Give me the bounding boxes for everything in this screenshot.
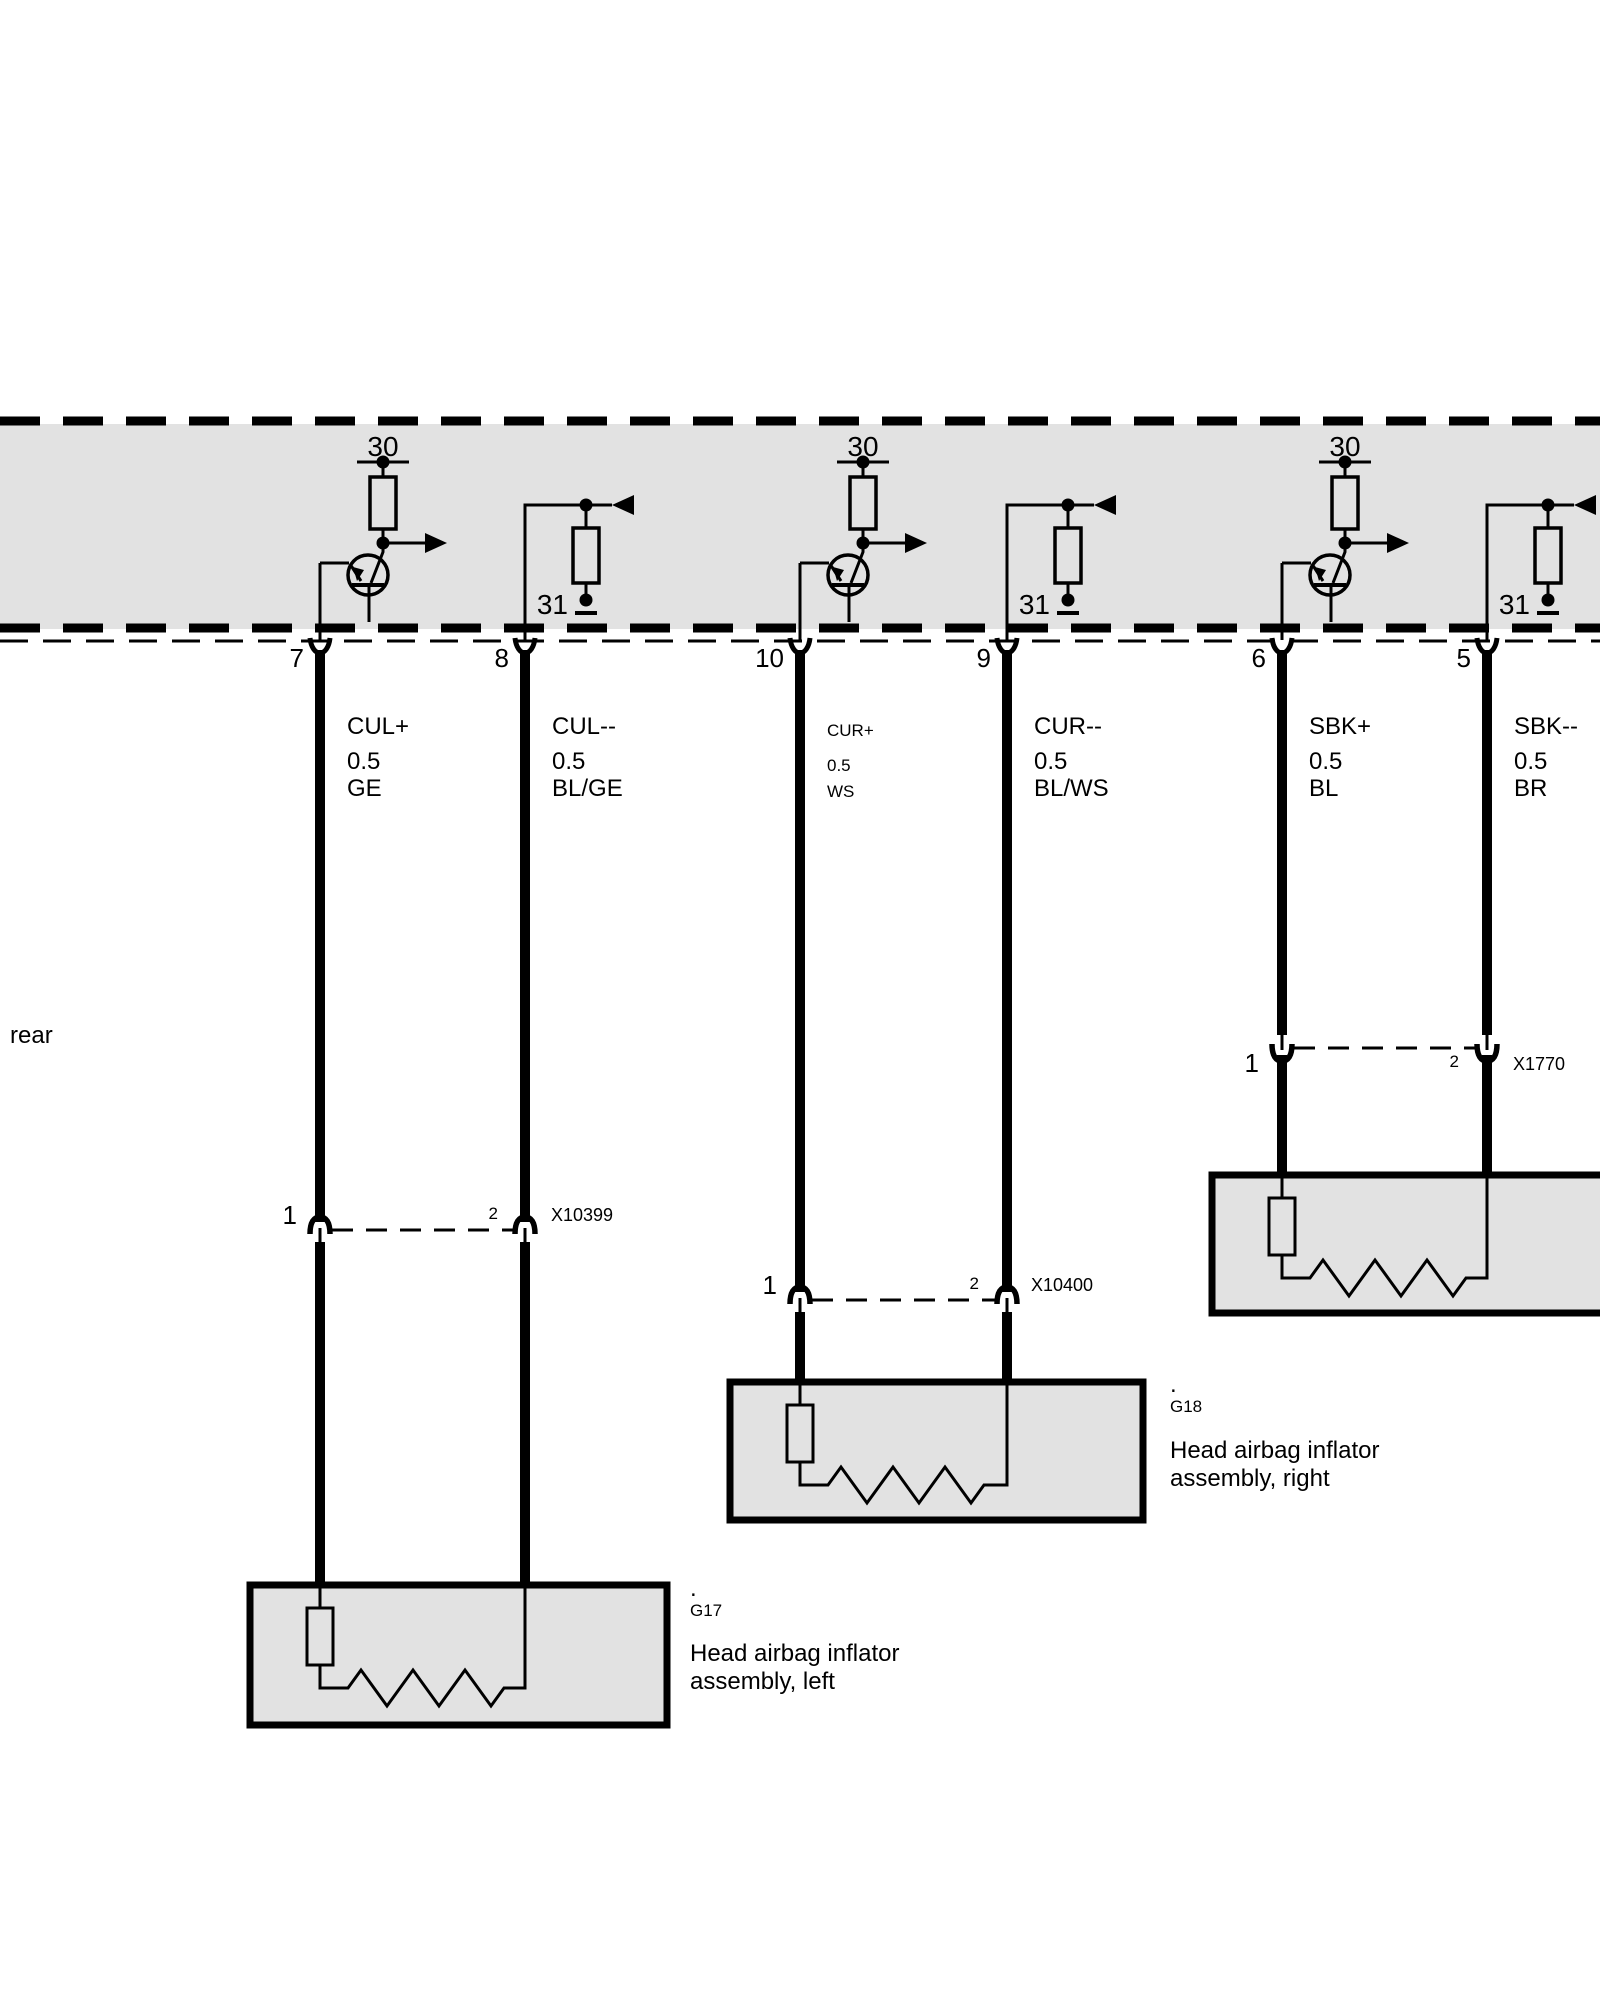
component-id: G18 xyxy=(1170,1397,1202,1416)
connector-right-pin: 2 xyxy=(1450,1052,1459,1071)
wire-signal: SBK-- xyxy=(1514,713,1578,740)
wire-gauge: 0.5 xyxy=(347,748,380,775)
wire-gauge: 0.5 xyxy=(1034,748,1067,775)
component-box-g18 xyxy=(730,1382,1143,1520)
pin-number-5: 5 xyxy=(1457,643,1471,673)
component-marker: . xyxy=(690,1575,697,1602)
connector-right-pin: 2 xyxy=(970,1274,979,1293)
connector-id: X10399 xyxy=(551,1205,613,1225)
wire-signal: CUR+ xyxy=(827,721,874,740)
terminal-31-label: 31 xyxy=(1499,589,1530,620)
component-box-g17 xyxy=(250,1585,667,1725)
wire-signal: CUL+ xyxy=(347,713,409,740)
g18-box xyxy=(730,1382,1143,1520)
wiring-diagram-page: 30 30 30 31 31 31 7 8 10 9 6 5 CUL+ 0.5 … xyxy=(0,0,1600,2000)
wire-color: GE xyxy=(347,775,382,802)
wire-gauge: 0.5 xyxy=(1514,748,1547,775)
terminal-30-label: 30 xyxy=(1329,431,1360,462)
terminal-31-label: 31 xyxy=(1019,589,1050,620)
connector-left-pin: 1 xyxy=(763,1270,777,1300)
component-name-line1: Head airbag inflator xyxy=(690,1640,899,1667)
component-id: G17 xyxy=(690,1601,722,1620)
component-box-right-clipped xyxy=(1212,1175,1600,1313)
wire-color: BL/WS xyxy=(1034,775,1109,802)
wire-gauge: 0.5 xyxy=(552,748,585,775)
connector-left-pin: 1 xyxy=(283,1200,297,1230)
g17-box xyxy=(250,1585,667,1725)
connector-right-pin: 2 xyxy=(489,1204,498,1223)
pin-number-8: 8 xyxy=(495,643,509,673)
pin-number-7: 7 xyxy=(290,643,304,673)
pin-number-6: 6 xyxy=(1252,643,1266,673)
wire-gauge: 0.5 xyxy=(1309,748,1342,775)
location-label-rear: rear xyxy=(10,1022,53,1049)
wire-color: BL/GE xyxy=(552,775,623,802)
wire-signal: SBK+ xyxy=(1309,713,1371,740)
wire-gauge: 0.5 xyxy=(827,756,851,775)
pin-number-9: 9 xyxy=(977,643,991,673)
wire-color: BR xyxy=(1514,775,1547,802)
terminal-31-label: 31 xyxy=(537,589,568,620)
connector-left-pin: 1 xyxy=(1245,1048,1259,1078)
connector-id: X1770 xyxy=(1513,1054,1565,1074)
component-name-line2: assembly, right xyxy=(1170,1465,1330,1492)
wire-color: WS xyxy=(827,782,854,801)
connector-id: X10400 xyxy=(1031,1275,1093,1295)
wire-color: BL xyxy=(1309,775,1338,802)
component-name-line1: Head airbag inflator xyxy=(1170,1437,1379,1464)
wiring-diagram-canvas: 30 30 30 31 31 31 7 8 10 9 6 5 CUL+ 0.5 … xyxy=(0,0,1600,2000)
component-name-line2: assembly, left xyxy=(690,1668,835,1695)
component-marker: . xyxy=(1170,1371,1177,1398)
wire-signal: CUL-- xyxy=(552,713,616,740)
wire-signal: CUR-- xyxy=(1034,713,1102,740)
terminal-30-label: 30 xyxy=(847,431,878,462)
terminal-30-label: 30 xyxy=(367,431,398,462)
pin-number-10: 10 xyxy=(755,643,784,673)
